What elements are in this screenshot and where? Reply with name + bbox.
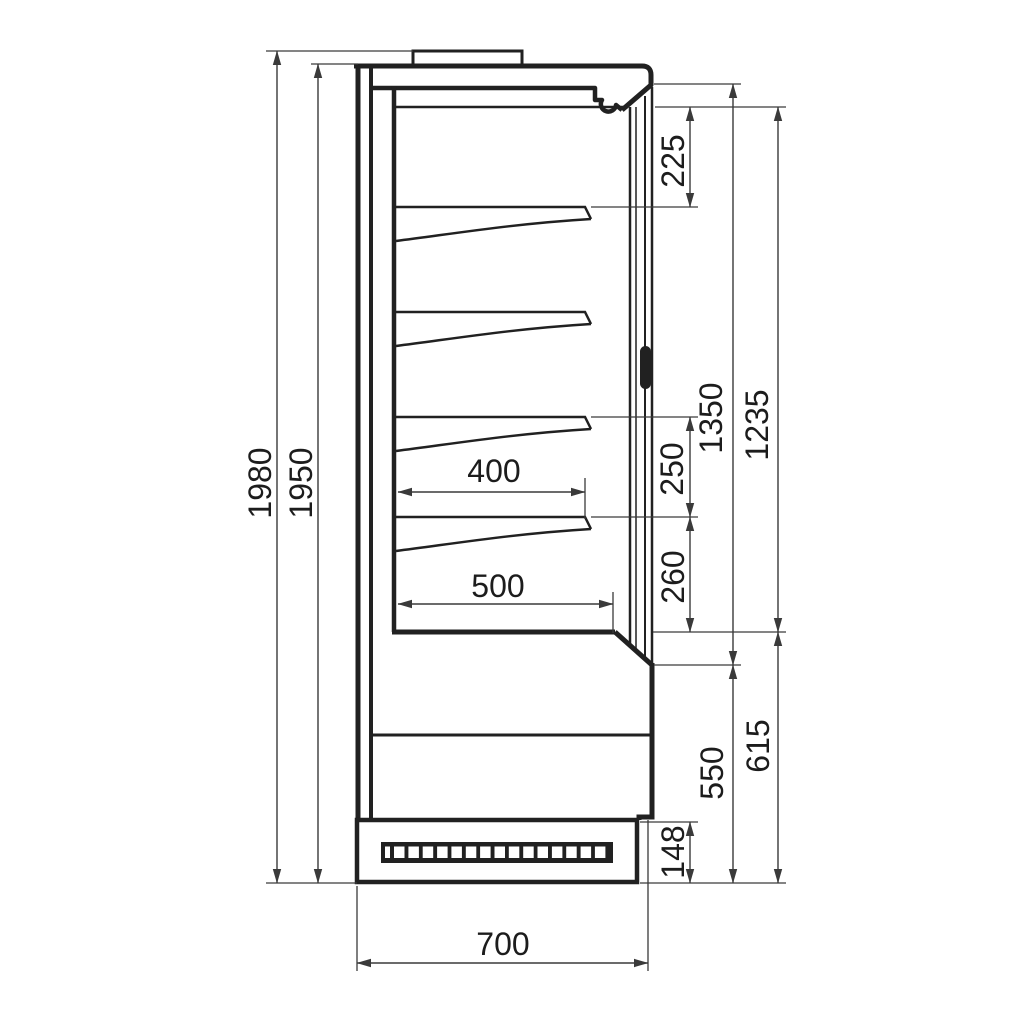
grille-slot xyxy=(552,847,563,859)
shelf-1-underside xyxy=(396,219,591,241)
cabinet-side-section-drawing: 1980 1950 225 250 260 148 1350 550 1235 … xyxy=(0,0,1024,1024)
front-diagonal xyxy=(615,632,652,665)
shelf-3-underside xyxy=(396,429,591,451)
lower-front-edge xyxy=(639,663,652,820)
label-door-height: 1235 xyxy=(739,389,775,460)
label-plinth-height: 148 xyxy=(655,825,691,878)
grille-slot xyxy=(480,847,491,859)
grille-slot xyxy=(385,847,390,859)
label-base-height-outer: 615 xyxy=(740,719,776,772)
door-handle xyxy=(640,346,651,389)
grille-slot xyxy=(595,847,606,859)
grille-slot xyxy=(523,847,534,859)
label-base-height-front: 550 xyxy=(694,746,730,799)
shelf-4-top xyxy=(396,517,591,529)
shelf-1 xyxy=(396,207,591,241)
label-body-height: 1950 xyxy=(283,447,319,518)
technical-drawing-page: 1980 1950 225 250 260 148 1350 550 1235 … xyxy=(0,0,1024,1024)
label-base-shelf-depth: 500 xyxy=(471,568,524,604)
grille-slot xyxy=(566,847,577,859)
grille-slot xyxy=(437,847,448,859)
shelf-2-top xyxy=(396,312,591,324)
shelf-3-top xyxy=(396,417,591,429)
grille-slot xyxy=(451,847,462,859)
grille-slot xyxy=(394,847,405,859)
label-top-shelf-gap: 225 xyxy=(655,134,691,187)
shelf-1-top xyxy=(396,207,591,219)
shelf-2 xyxy=(396,312,591,346)
grille-slot xyxy=(509,847,520,859)
grille-slot xyxy=(408,847,419,859)
label-shelf-spacing-upper: 250 xyxy=(654,442,690,495)
base-grille xyxy=(381,842,613,863)
grille-slot xyxy=(466,847,477,859)
shelf-4-underside xyxy=(396,529,591,551)
grille-slot xyxy=(495,847,506,859)
shelf-3 xyxy=(396,417,591,451)
label-shelf-depth: 400 xyxy=(467,453,520,489)
label-depth: 700 xyxy=(476,926,529,962)
label-interior-opening-height: 1350 xyxy=(693,382,729,453)
grille-slot xyxy=(423,847,434,859)
shelf-2-underside xyxy=(396,324,591,346)
label-shelf-spacing-lower: 260 xyxy=(655,550,691,603)
grille-slot xyxy=(538,847,549,859)
label-overall-height: 1980 xyxy=(242,447,278,518)
shelf-4 xyxy=(396,517,591,551)
grille-slot xyxy=(581,847,592,859)
